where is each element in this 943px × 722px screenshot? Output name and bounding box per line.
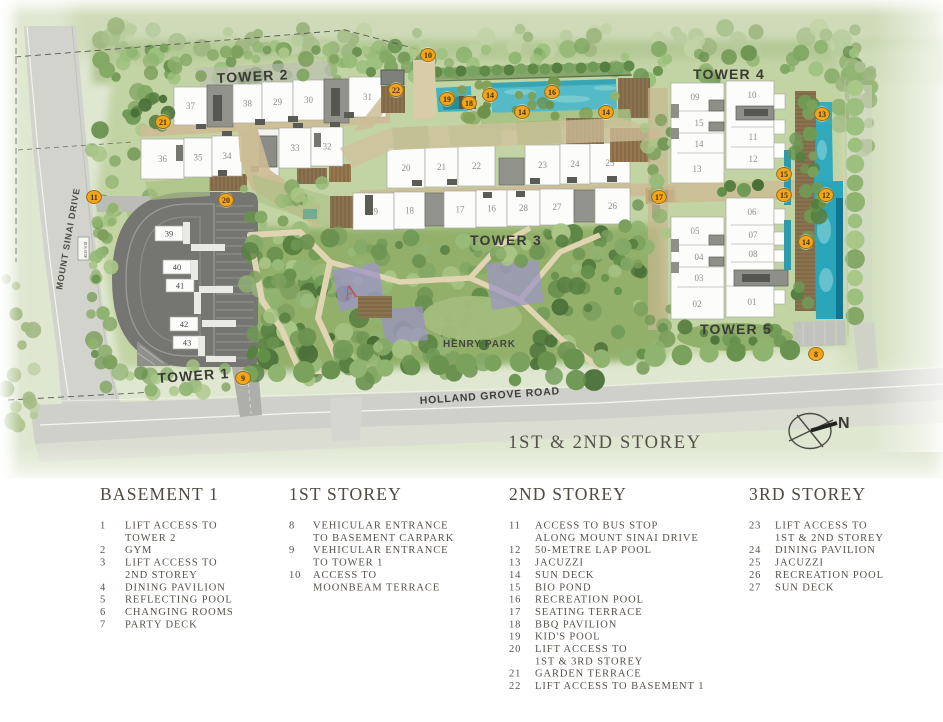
svg-text:14: 14 bbox=[518, 108, 526, 117]
svg-text:ACCESS TO BUS STOP: ACCESS TO BUS STOP bbox=[535, 521, 658, 532]
svg-text:13: 13 bbox=[509, 558, 521, 569]
svg-text:TOWER 2: TOWER 2 bbox=[125, 533, 176, 544]
svg-text:2ND STOREY: 2ND STOREY bbox=[509, 484, 627, 504]
svg-text:PARTY DECK: PARTY DECK bbox=[125, 619, 198, 630]
svg-text:BUS STOP: BUS STOP bbox=[83, 242, 87, 259]
svg-text:26: 26 bbox=[749, 570, 761, 581]
svg-text:20: 20 bbox=[222, 196, 230, 205]
svg-text:1ST STOREY: 1ST STOREY bbox=[289, 484, 402, 504]
svg-text:25: 25 bbox=[749, 558, 761, 569]
svg-text:37: 37 bbox=[186, 101, 196, 111]
svg-text:15: 15 bbox=[780, 170, 788, 179]
svg-text:RECREATION POOL: RECREATION POOL bbox=[535, 595, 644, 606]
svg-text:REFLECTING POOL: REFLECTING POOL bbox=[125, 595, 233, 606]
svg-text:JACUZZI: JACUZZI bbox=[535, 558, 584, 569]
svg-text:19: 19 bbox=[443, 95, 451, 104]
svg-text:1ST & 2ND STOREY: 1ST & 2ND STOREY bbox=[508, 433, 702, 453]
svg-text:41: 41 bbox=[176, 281, 185, 291]
svg-text:TO BASEMENT CARPARK: TO BASEMENT CARPARK bbox=[313, 533, 454, 544]
svg-text:27: 27 bbox=[749, 582, 761, 593]
svg-text:11: 11 bbox=[90, 193, 98, 202]
svg-text:36: 36 bbox=[158, 154, 168, 164]
svg-text:4: 4 bbox=[100, 582, 106, 593]
svg-text:GYM: GYM bbox=[125, 545, 152, 556]
svg-text:21: 21 bbox=[509, 669, 521, 680]
svg-text:04: 04 bbox=[695, 252, 705, 262]
svg-text:14: 14 bbox=[802, 238, 810, 247]
svg-text:31: 31 bbox=[363, 92, 372, 102]
svg-text:18: 18 bbox=[405, 206, 415, 216]
svg-text:02: 02 bbox=[693, 299, 702, 309]
svg-text:3RD STOREY: 3RD STOREY bbox=[749, 484, 866, 504]
svg-text:19: 19 bbox=[509, 632, 521, 643]
svg-text:01: 01 bbox=[748, 297, 757, 307]
svg-text:1ST & 2ND STOREY: 1ST & 2ND STOREY bbox=[775, 533, 884, 544]
svg-text:7: 7 bbox=[100, 619, 106, 630]
svg-text:15: 15 bbox=[780, 191, 788, 200]
svg-text:18: 18 bbox=[465, 99, 473, 108]
svg-text:2: 2 bbox=[100, 545, 106, 556]
svg-text:5: 5 bbox=[100, 595, 106, 606]
svg-text:BASEMENT 1: BASEMENT 1 bbox=[100, 484, 219, 504]
svg-text:21: 21 bbox=[159, 118, 167, 127]
svg-text:1: 1 bbox=[100, 521, 106, 532]
svg-text:07: 07 bbox=[749, 230, 759, 240]
svg-text:SUN DECK: SUN DECK bbox=[775, 582, 834, 593]
svg-text:BIO POND: BIO POND bbox=[535, 582, 592, 593]
svg-text:22: 22 bbox=[509, 681, 521, 692]
svg-text:14: 14 bbox=[509, 570, 521, 581]
svg-text:23: 23 bbox=[749, 521, 761, 532]
svg-text:32: 32 bbox=[323, 142, 332, 152]
svg-text:09: 09 bbox=[691, 92, 701, 102]
svg-text:TO TOWER 1: TO TOWER 1 bbox=[313, 558, 383, 569]
svg-text:15: 15 bbox=[695, 118, 705, 128]
svg-text:MOONBEAM TERRACE: MOONBEAM TERRACE bbox=[313, 582, 440, 593]
svg-text:10: 10 bbox=[289, 570, 301, 581]
svg-text:16: 16 bbox=[509, 595, 521, 606]
svg-text:38: 38 bbox=[243, 99, 253, 109]
svg-text:10: 10 bbox=[748, 90, 758, 100]
svg-text:9: 9 bbox=[289, 545, 295, 556]
svg-text:39: 39 bbox=[165, 229, 174, 239]
svg-text:LIFT ACCESS TO: LIFT ACCESS TO bbox=[125, 558, 218, 569]
svg-text:06: 06 bbox=[748, 207, 758, 217]
svg-text:03: 03 bbox=[695, 273, 705, 283]
svg-text:BBQ PAVILION: BBQ PAVILION bbox=[535, 619, 617, 630]
svg-text:10: 10 bbox=[424, 51, 432, 60]
svg-text:12: 12 bbox=[509, 545, 521, 556]
svg-text:20: 20 bbox=[402, 163, 412, 173]
svg-text:LIFT ACCESS TO: LIFT ACCESS TO bbox=[125, 521, 218, 532]
svg-text:HENRY PARK: HENRY PARK bbox=[443, 339, 516, 350]
svg-text:DINING PAVILION: DINING PAVILION bbox=[125, 582, 226, 593]
svg-text:TOWER 4: TOWER 4 bbox=[693, 66, 765, 82]
svg-text:11: 11 bbox=[749, 132, 758, 142]
svg-text:24: 24 bbox=[571, 159, 581, 169]
svg-text:33: 33 bbox=[291, 143, 301, 153]
svg-text:14: 14 bbox=[695, 139, 705, 149]
svg-text:CHANGING ROOMS: CHANGING ROOMS bbox=[125, 607, 234, 618]
svg-text:16: 16 bbox=[548, 88, 556, 97]
svg-text:15: 15 bbox=[509, 582, 521, 593]
svg-text:13: 13 bbox=[693, 164, 703, 174]
svg-text:40: 40 bbox=[173, 262, 182, 272]
svg-text:RECREATION POOL: RECREATION POOL bbox=[775, 570, 884, 581]
svg-text:8: 8 bbox=[814, 350, 818, 359]
svg-text:35: 35 bbox=[194, 153, 204, 163]
svg-text:VEHICULAR ENTRANCE: VEHICULAR ENTRANCE bbox=[313, 521, 448, 532]
svg-text:DINING PAVILION: DINING PAVILION bbox=[775, 545, 876, 556]
svg-text:12: 12 bbox=[822, 191, 830, 200]
svg-text:50-METRE LAP POOL: 50-METRE LAP POOL bbox=[535, 545, 652, 556]
svg-text:42: 42 bbox=[180, 319, 189, 329]
svg-text:ACCESS TO: ACCESS TO bbox=[313, 570, 377, 581]
svg-text:LIFT ACCESS TO: LIFT ACCESS TO bbox=[535, 644, 628, 655]
svg-text:TOWER 3: TOWER 3 bbox=[470, 232, 542, 248]
svg-text:LIFT ACCESS TO: LIFT ACCESS TO bbox=[775, 521, 868, 532]
svg-text:12: 12 bbox=[749, 154, 758, 164]
svg-text:SEATING TERRACE: SEATING TERRACE bbox=[535, 607, 643, 618]
svg-text:43: 43 bbox=[183, 338, 192, 348]
svg-text:14: 14 bbox=[602, 108, 610, 117]
svg-text:14: 14 bbox=[486, 91, 494, 100]
svg-text:30: 30 bbox=[304, 95, 314, 105]
svg-text:34: 34 bbox=[223, 151, 233, 161]
svg-text:05: 05 bbox=[691, 226, 701, 236]
svg-text:6: 6 bbox=[100, 607, 106, 618]
svg-text:16: 16 bbox=[487, 204, 497, 214]
svg-text:22: 22 bbox=[392, 86, 400, 95]
svg-text:TOWER 5: TOWER 5 bbox=[700, 321, 772, 337]
svg-text:8: 8 bbox=[289, 521, 295, 532]
svg-text:21: 21 bbox=[437, 162, 446, 172]
svg-text:28: 28 bbox=[519, 203, 529, 213]
svg-text:27: 27 bbox=[553, 202, 563, 212]
svg-text:JACUZZI: JACUZZI bbox=[775, 558, 824, 569]
svg-text:17: 17 bbox=[509, 607, 521, 618]
svg-text:LIFT ACCESS TO BASEMENT 1: LIFT ACCESS TO BASEMENT 1 bbox=[535, 681, 704, 692]
svg-text:22: 22 bbox=[472, 161, 481, 171]
svg-text:VEHICULAR ENTRANCE: VEHICULAR ENTRANCE bbox=[313, 545, 448, 556]
svg-text:1ST & 3RD STOREY: 1ST & 3RD STOREY bbox=[535, 656, 643, 667]
svg-text:13: 13 bbox=[818, 110, 826, 119]
svg-text:18: 18 bbox=[509, 619, 521, 630]
svg-text:24: 24 bbox=[749, 545, 761, 556]
svg-text:3: 3 bbox=[100, 558, 106, 569]
svg-text:2ND STOREY: 2ND STOREY bbox=[125, 570, 198, 581]
svg-text:29: 29 bbox=[273, 97, 283, 107]
svg-text:26: 26 bbox=[608, 201, 618, 211]
svg-text:KID'S POOL: KID'S POOL bbox=[535, 632, 600, 643]
svg-text:08: 08 bbox=[749, 249, 759, 259]
svg-text:GARDEN TERRACE: GARDEN TERRACE bbox=[535, 669, 642, 680]
svg-text:17: 17 bbox=[655, 193, 663, 202]
svg-text:SUN DECK: SUN DECK bbox=[535, 570, 594, 581]
svg-text:9: 9 bbox=[241, 374, 245, 383]
svg-text:N: N bbox=[838, 415, 850, 432]
svg-text:ALONG MOUNT SINAI DRIVE: ALONG MOUNT SINAI DRIVE bbox=[535, 533, 699, 544]
svg-text:17: 17 bbox=[456, 205, 466, 215]
svg-text:23: 23 bbox=[538, 160, 548, 170]
svg-text:20: 20 bbox=[509, 644, 521, 655]
svg-text:11: 11 bbox=[509, 521, 521, 532]
